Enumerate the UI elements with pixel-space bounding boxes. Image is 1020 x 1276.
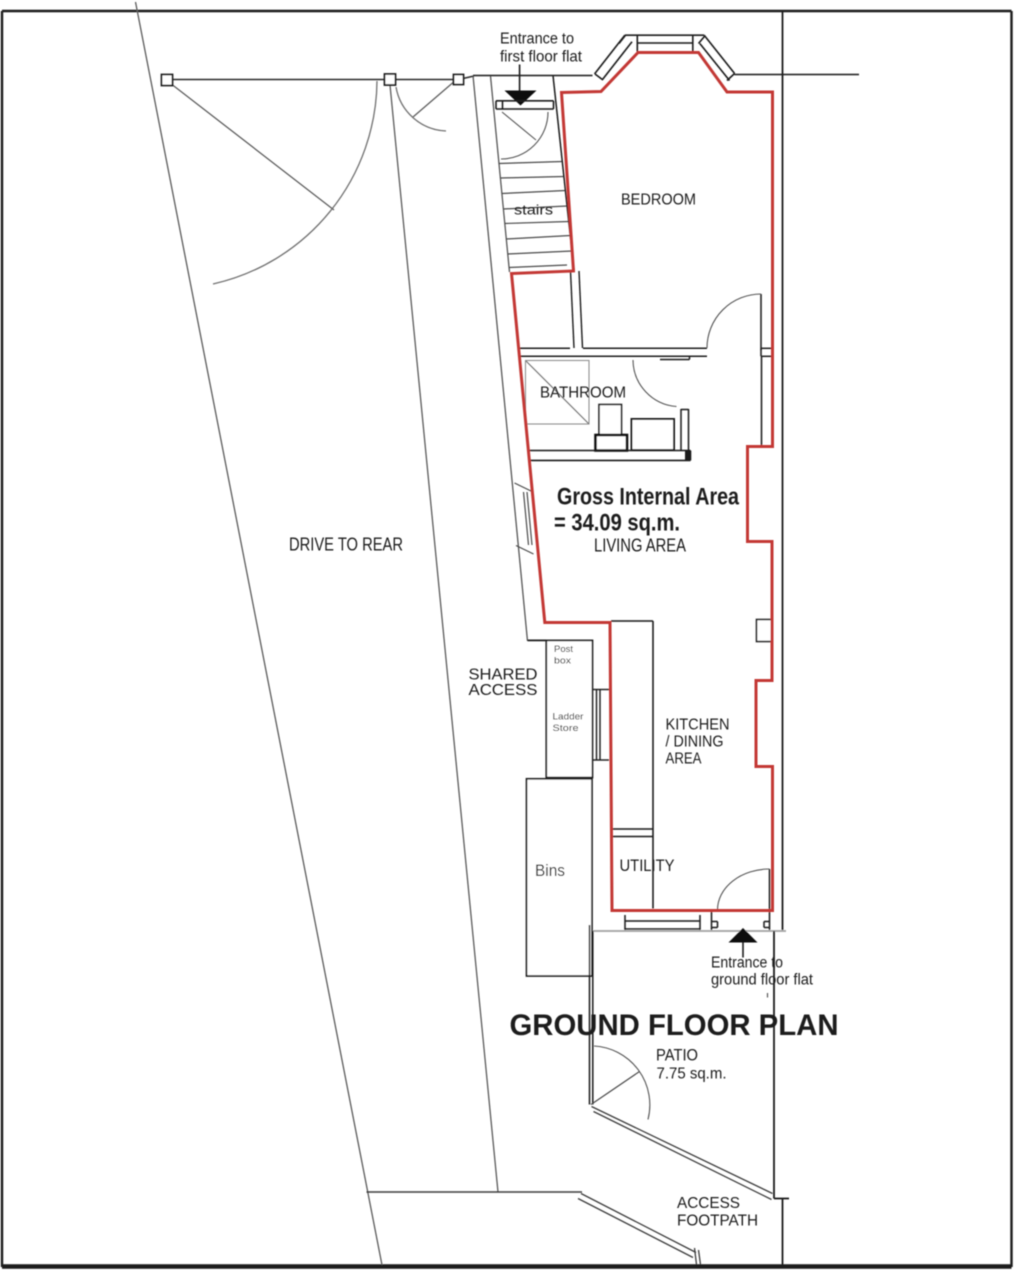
svg-text:SHARED: SHARED [469,667,538,684]
svg-text:Entrance to: Entrance to [500,31,574,48]
svg-text:BEDROOM: BEDROOM [621,192,696,209]
svg-text:7.75 sq.m.: 7.75 sq.m. [657,1066,727,1083]
svg-text:BATHROOM: BATHROOM [540,385,626,402]
svg-text:/ DINING: / DINING [666,734,724,751]
svg-text:UTILITY: UTILITY [620,857,675,875]
svg-text:KITCHEN: KITCHEN [666,717,730,734]
svg-text:Entrance to: Entrance to [711,955,783,972]
svg-text:Ladder: Ladder [553,712,584,723]
svg-text:first floor flat: first floor flat [500,49,583,66]
svg-text:ACCESS: ACCESS [677,1195,740,1212]
svg-text:DRIVE TO REAR: DRIVE TO REAR [289,535,403,555]
svg-text:Store: Store [553,723,579,734]
svg-text:Bins: Bins [535,861,565,880]
svg-text:Post: Post [554,644,573,655]
svg-text:ground floor flat: ground floor flat [711,972,814,989]
svg-text:= 34.09 sq.m.: = 34.09 sq.m. [554,510,680,537]
svg-text:PATIO: PATIO [656,1046,698,1065]
svg-text:FOOTPATH: FOOTPATH [677,1213,758,1230]
svg-text:AREA: AREA [666,751,702,768]
svg-text:stairs: stairs [514,203,553,218]
svg-text:LIVING AREA: LIVING AREA [594,535,687,556]
svg-text:ACCESS: ACCESS [469,682,538,699]
svg-text:box: box [554,656,571,667]
svg-text:GROUND FLOOR PLAN: GROUND FLOOR PLAN [510,1009,839,1042]
svg-text:Gross Internal Area: Gross Internal Area [557,484,740,511]
